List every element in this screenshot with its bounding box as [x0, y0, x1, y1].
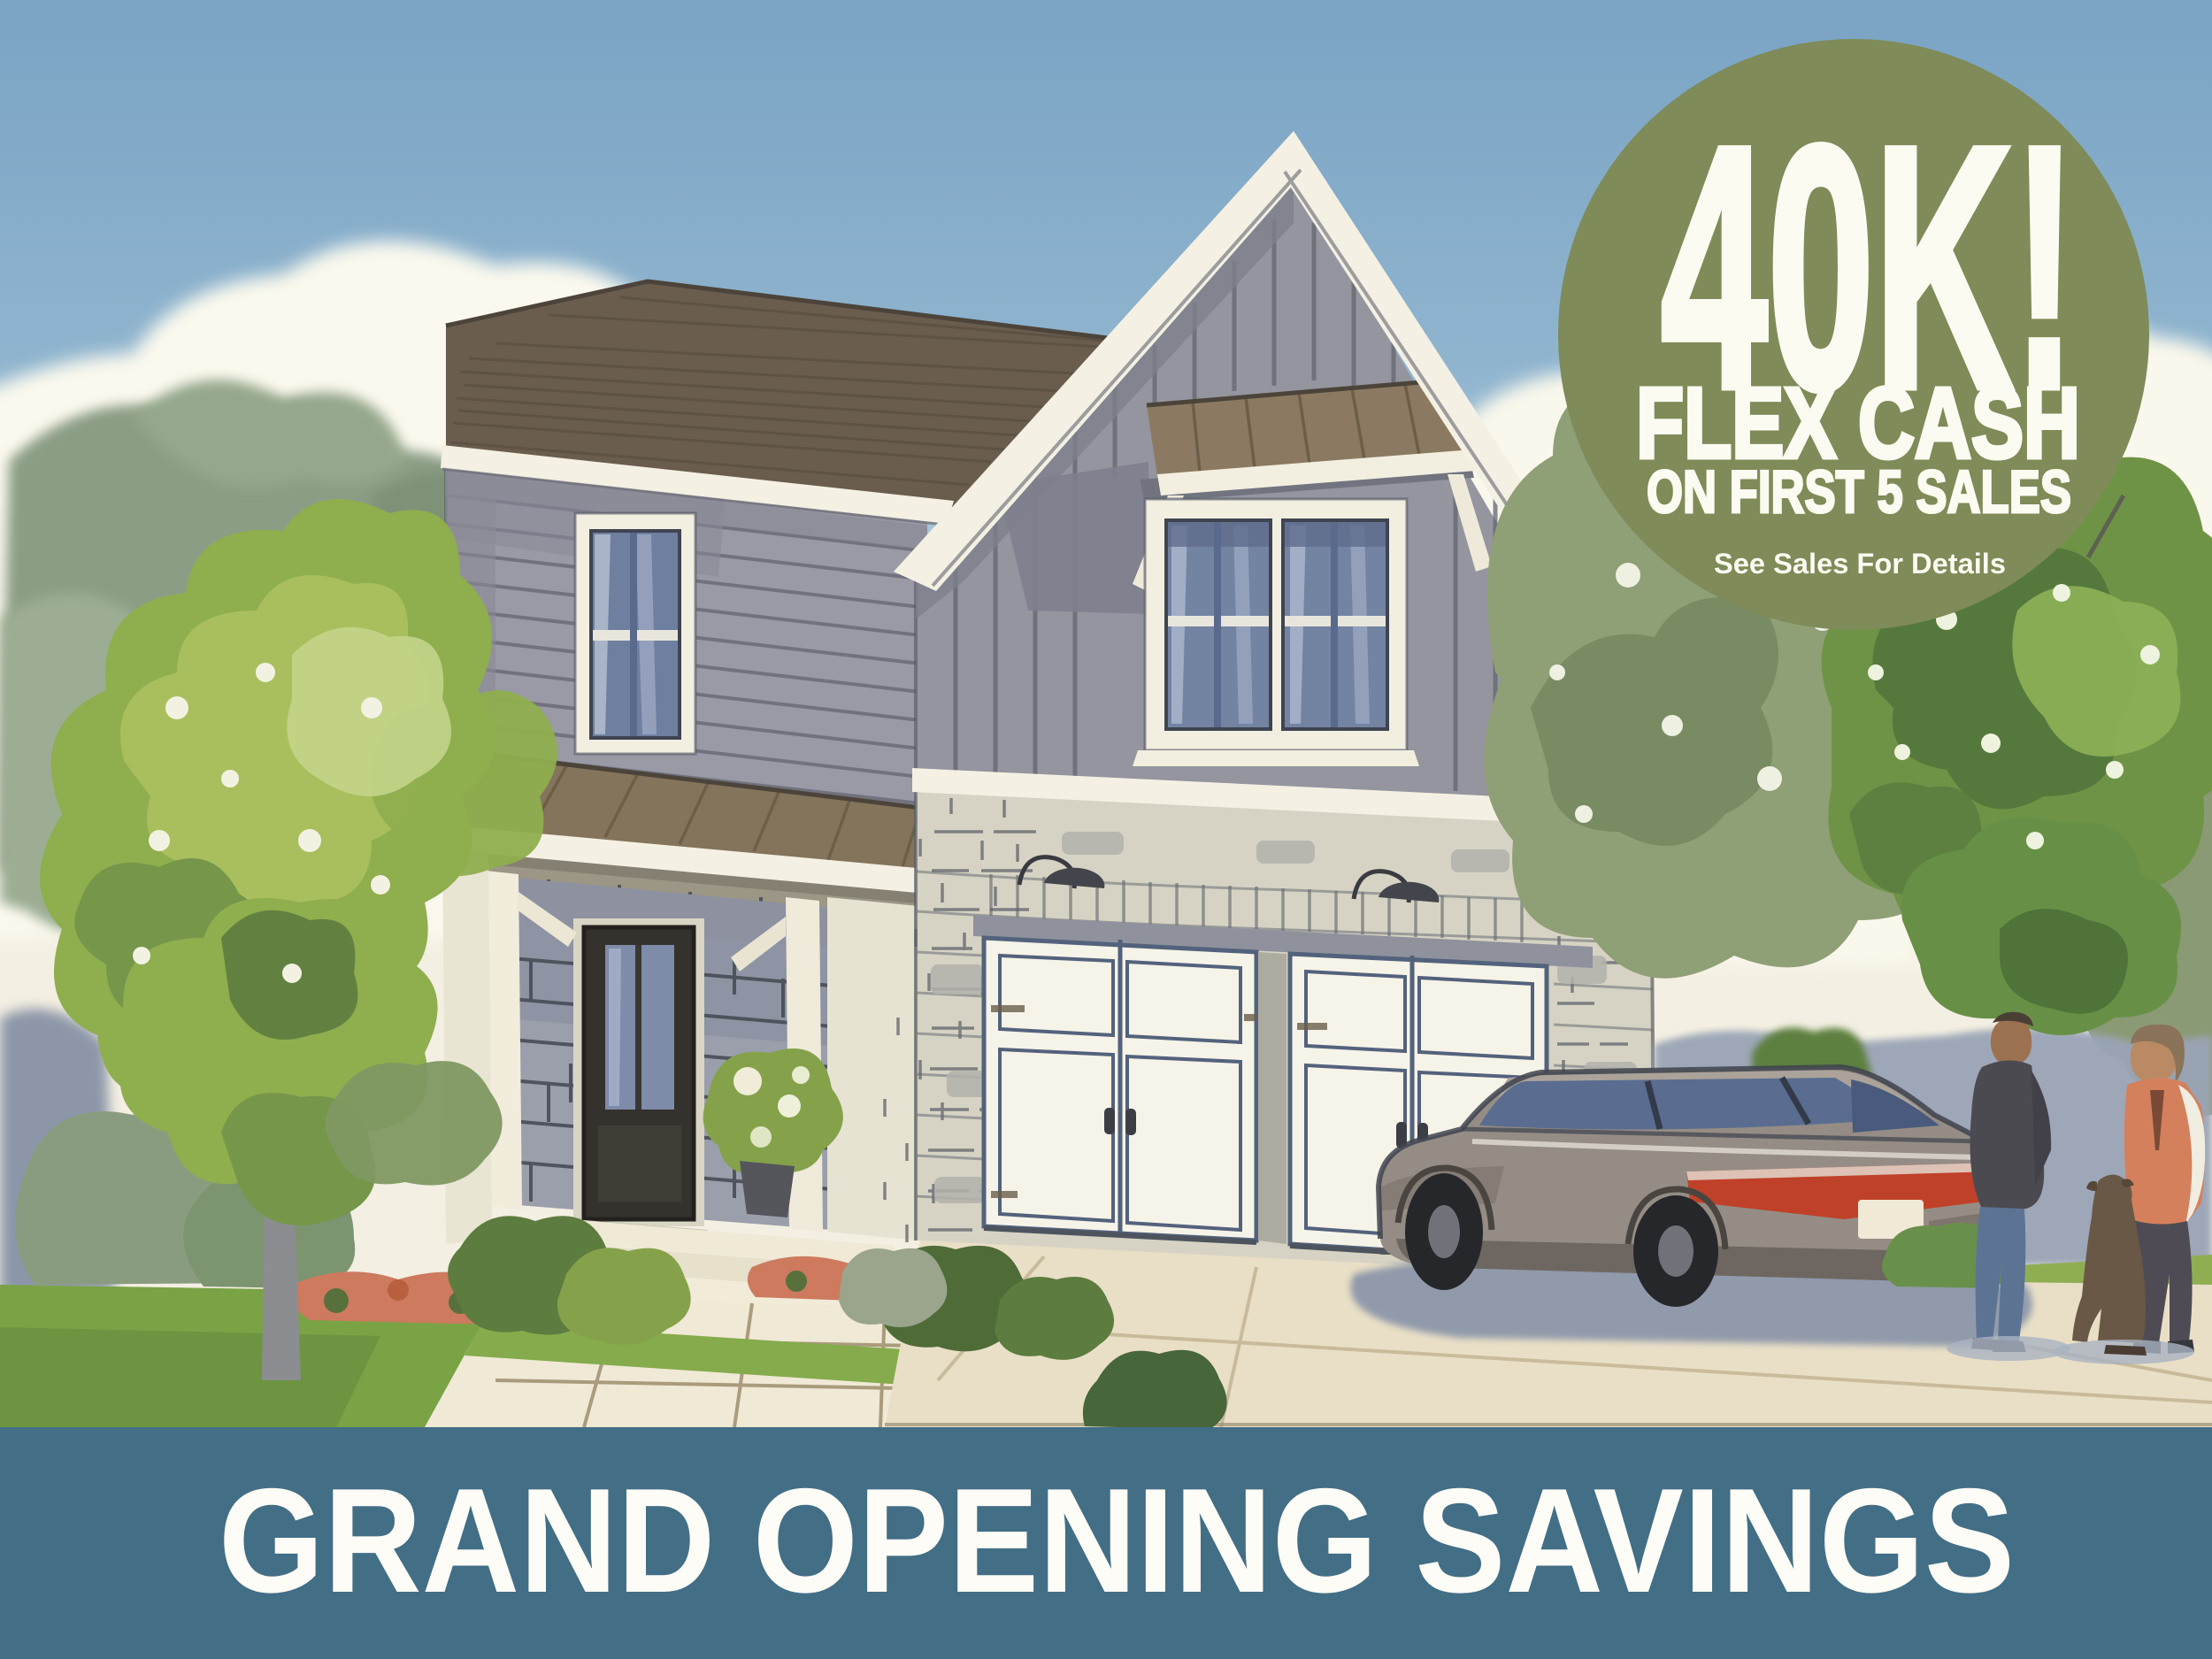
svg-text:See Sales For Details: See Sales For Details — [1714, 548, 2006, 580]
svg-text:GRAND OPENING SAVINGS: GRAND OPENING SAVINGS — [219, 1457, 2015, 1624]
svg-text:ON FIRST 5 SALES: ON FIRST 5 SALES — [1647, 458, 2071, 526]
